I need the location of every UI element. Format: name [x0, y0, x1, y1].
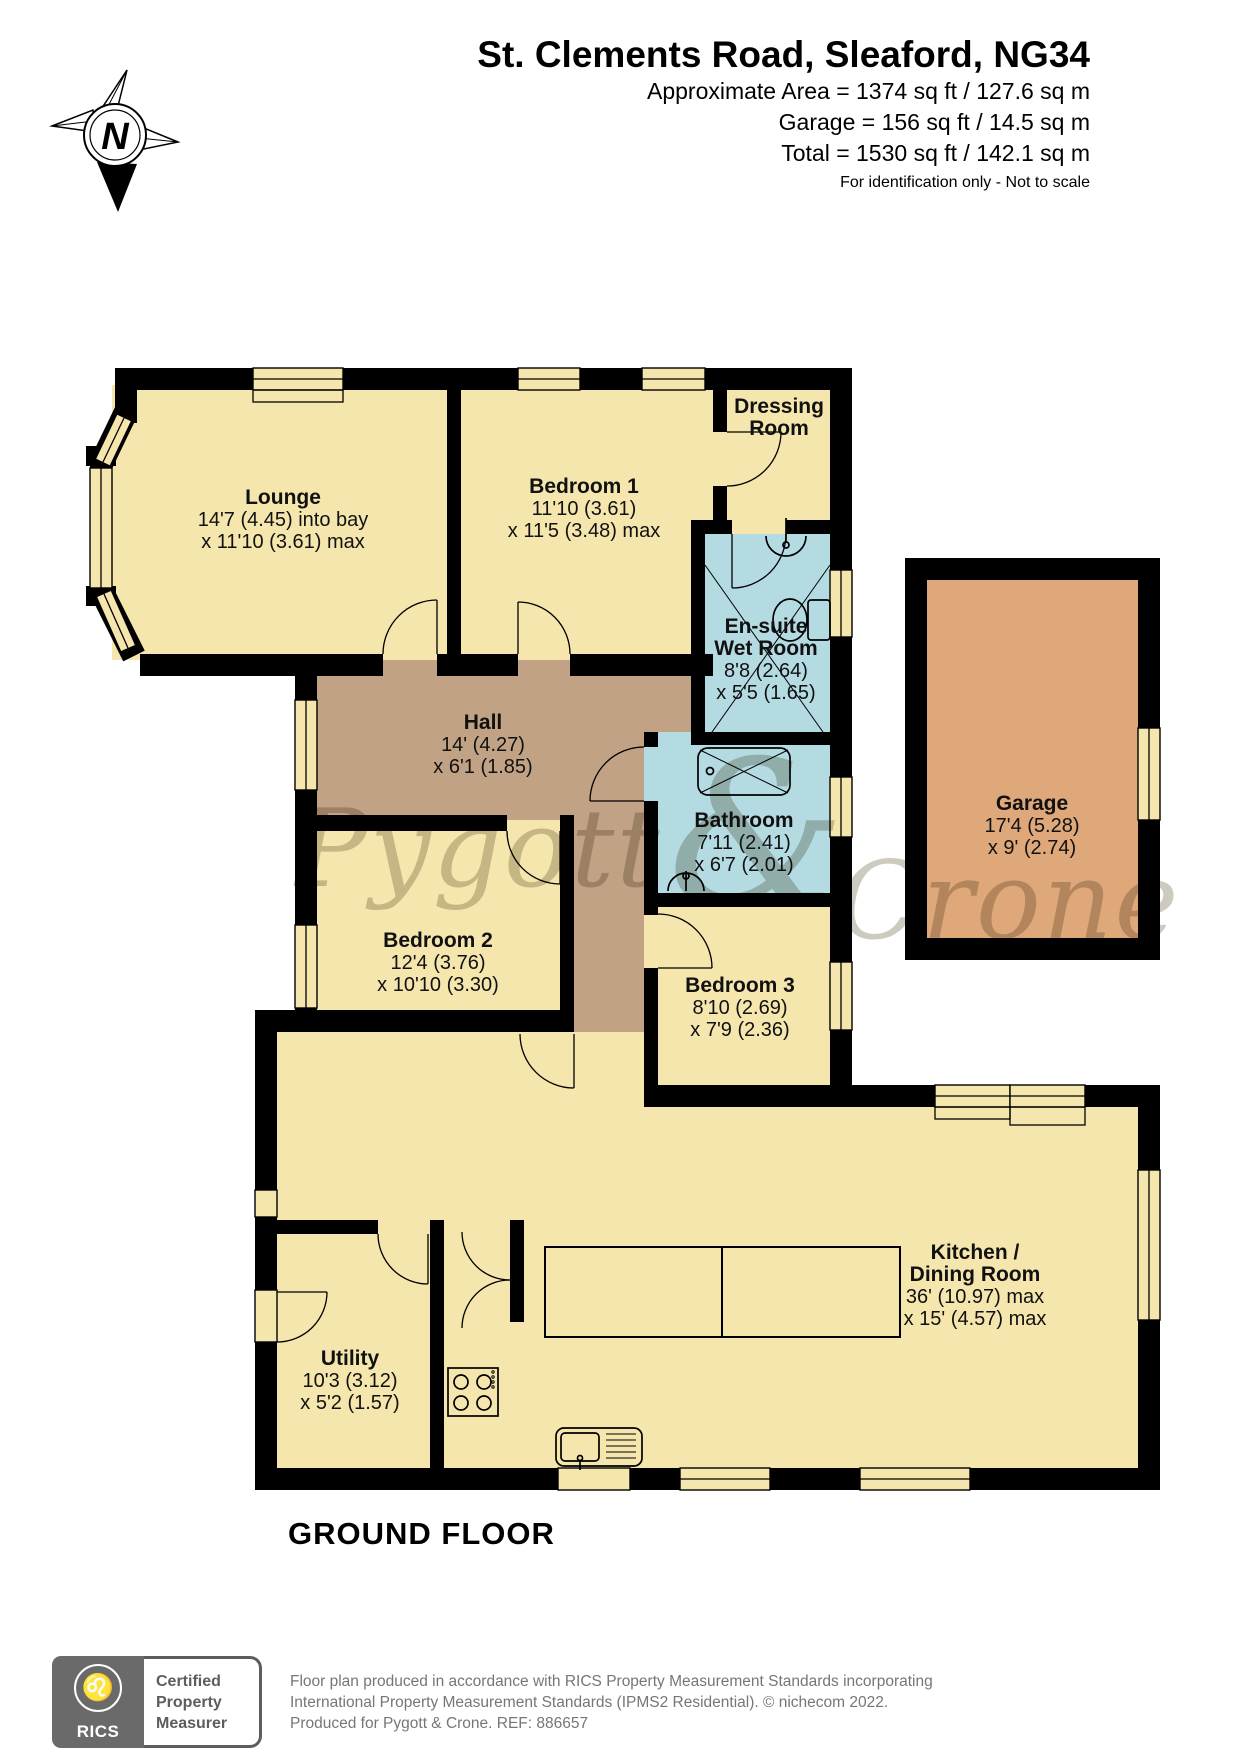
compass-n-label: N — [101, 116, 130, 158]
footer-line: Floor plan produced in accordance with R… — [290, 1671, 933, 1692]
rics-lion-icon: ♌ — [74, 1664, 122, 1712]
footer: ♌ RICS Certified Property Measurer Floor… — [52, 1656, 933, 1748]
room-label-lounge: Lounge14'7 (4.45) into bayx 11'10 (3.61)… — [198, 487, 369, 553]
room-label-kitchen: Kitchen /Dining Room 36' (10.97) maxx 15… — [904, 1242, 1047, 1330]
room-label-dressing: DressingRoom — [734, 396, 824, 440]
room-label-bedroom2: Bedroom 212'4 (3.76)x 10'10 (3.30) — [377, 930, 499, 996]
floor-label: GROUND FLOOR — [288, 1516, 555, 1552]
certified-measurer-badge: Certified Property Measurer — [144, 1656, 262, 1748]
rics-logo: ♌ RICS — [52, 1656, 144, 1748]
floorplan-page: N Pygott & Crone St. Clements Road, Slea… — [0, 0, 1241, 1755]
header: St. Clements Road, Sleaford, NG34 Approx… — [477, 34, 1090, 192]
room-label-garage: Garage17'4 (5.28)x 9' (2.74) — [985, 793, 1080, 859]
room-fill-hall-corridor — [560, 817, 658, 1040]
scale-note: For identification only - Not to scale — [477, 174, 1090, 192]
room-label-hall: Hall14' (4.27)x 6'1 (1.85) — [433, 712, 532, 778]
approximate-area: Approximate Area = 1374 sq ft / 127.6 sq… — [477, 76, 1090, 107]
room-fill-garage — [927, 580, 1138, 938]
footer-line: Produced for Pygott & Crone. REF: 886657 — [290, 1713, 933, 1734]
room-label-utility: Utility10'3 (3.12)x 5'2 (1.57) — [300, 1348, 399, 1414]
room-fill-kitchen-right — [658, 1107, 1138, 1468]
room-label-bedroom1: Bedroom 111'10 (3.61)x 11'5 (3.48) max — [508, 476, 660, 542]
room-label-bathroom: Bathroom7'11 (2.41)x 6'7 (2.01) — [694, 810, 793, 876]
total-area: Total = 1530 sq ft / 142.1 sq m — [477, 138, 1090, 169]
footer-disclaimer: Floor plan produced in accordance with R… — [290, 1656, 933, 1748]
garage-area: Garage = 156 sq ft / 14.5 sq m — [477, 107, 1090, 138]
footer-line: International Property Measurement Stand… — [290, 1692, 933, 1713]
rics-wordmark: RICS — [77, 1722, 120, 1742]
room-label-ensuite: En-suiteWet Room 8'8 (2.64)x 5'5 (1.65) — [714, 616, 817, 704]
page-title: St. Clements Road, Sleaford, NG34 — [477, 34, 1090, 76]
floorplan-drawing: N — [0, 0, 1241, 1755]
compass-north-icon: N — [52, 70, 178, 212]
room-label-bedroom3: Bedroom 38'10 (2.69)x 7'9 (2.36) — [685, 975, 795, 1041]
